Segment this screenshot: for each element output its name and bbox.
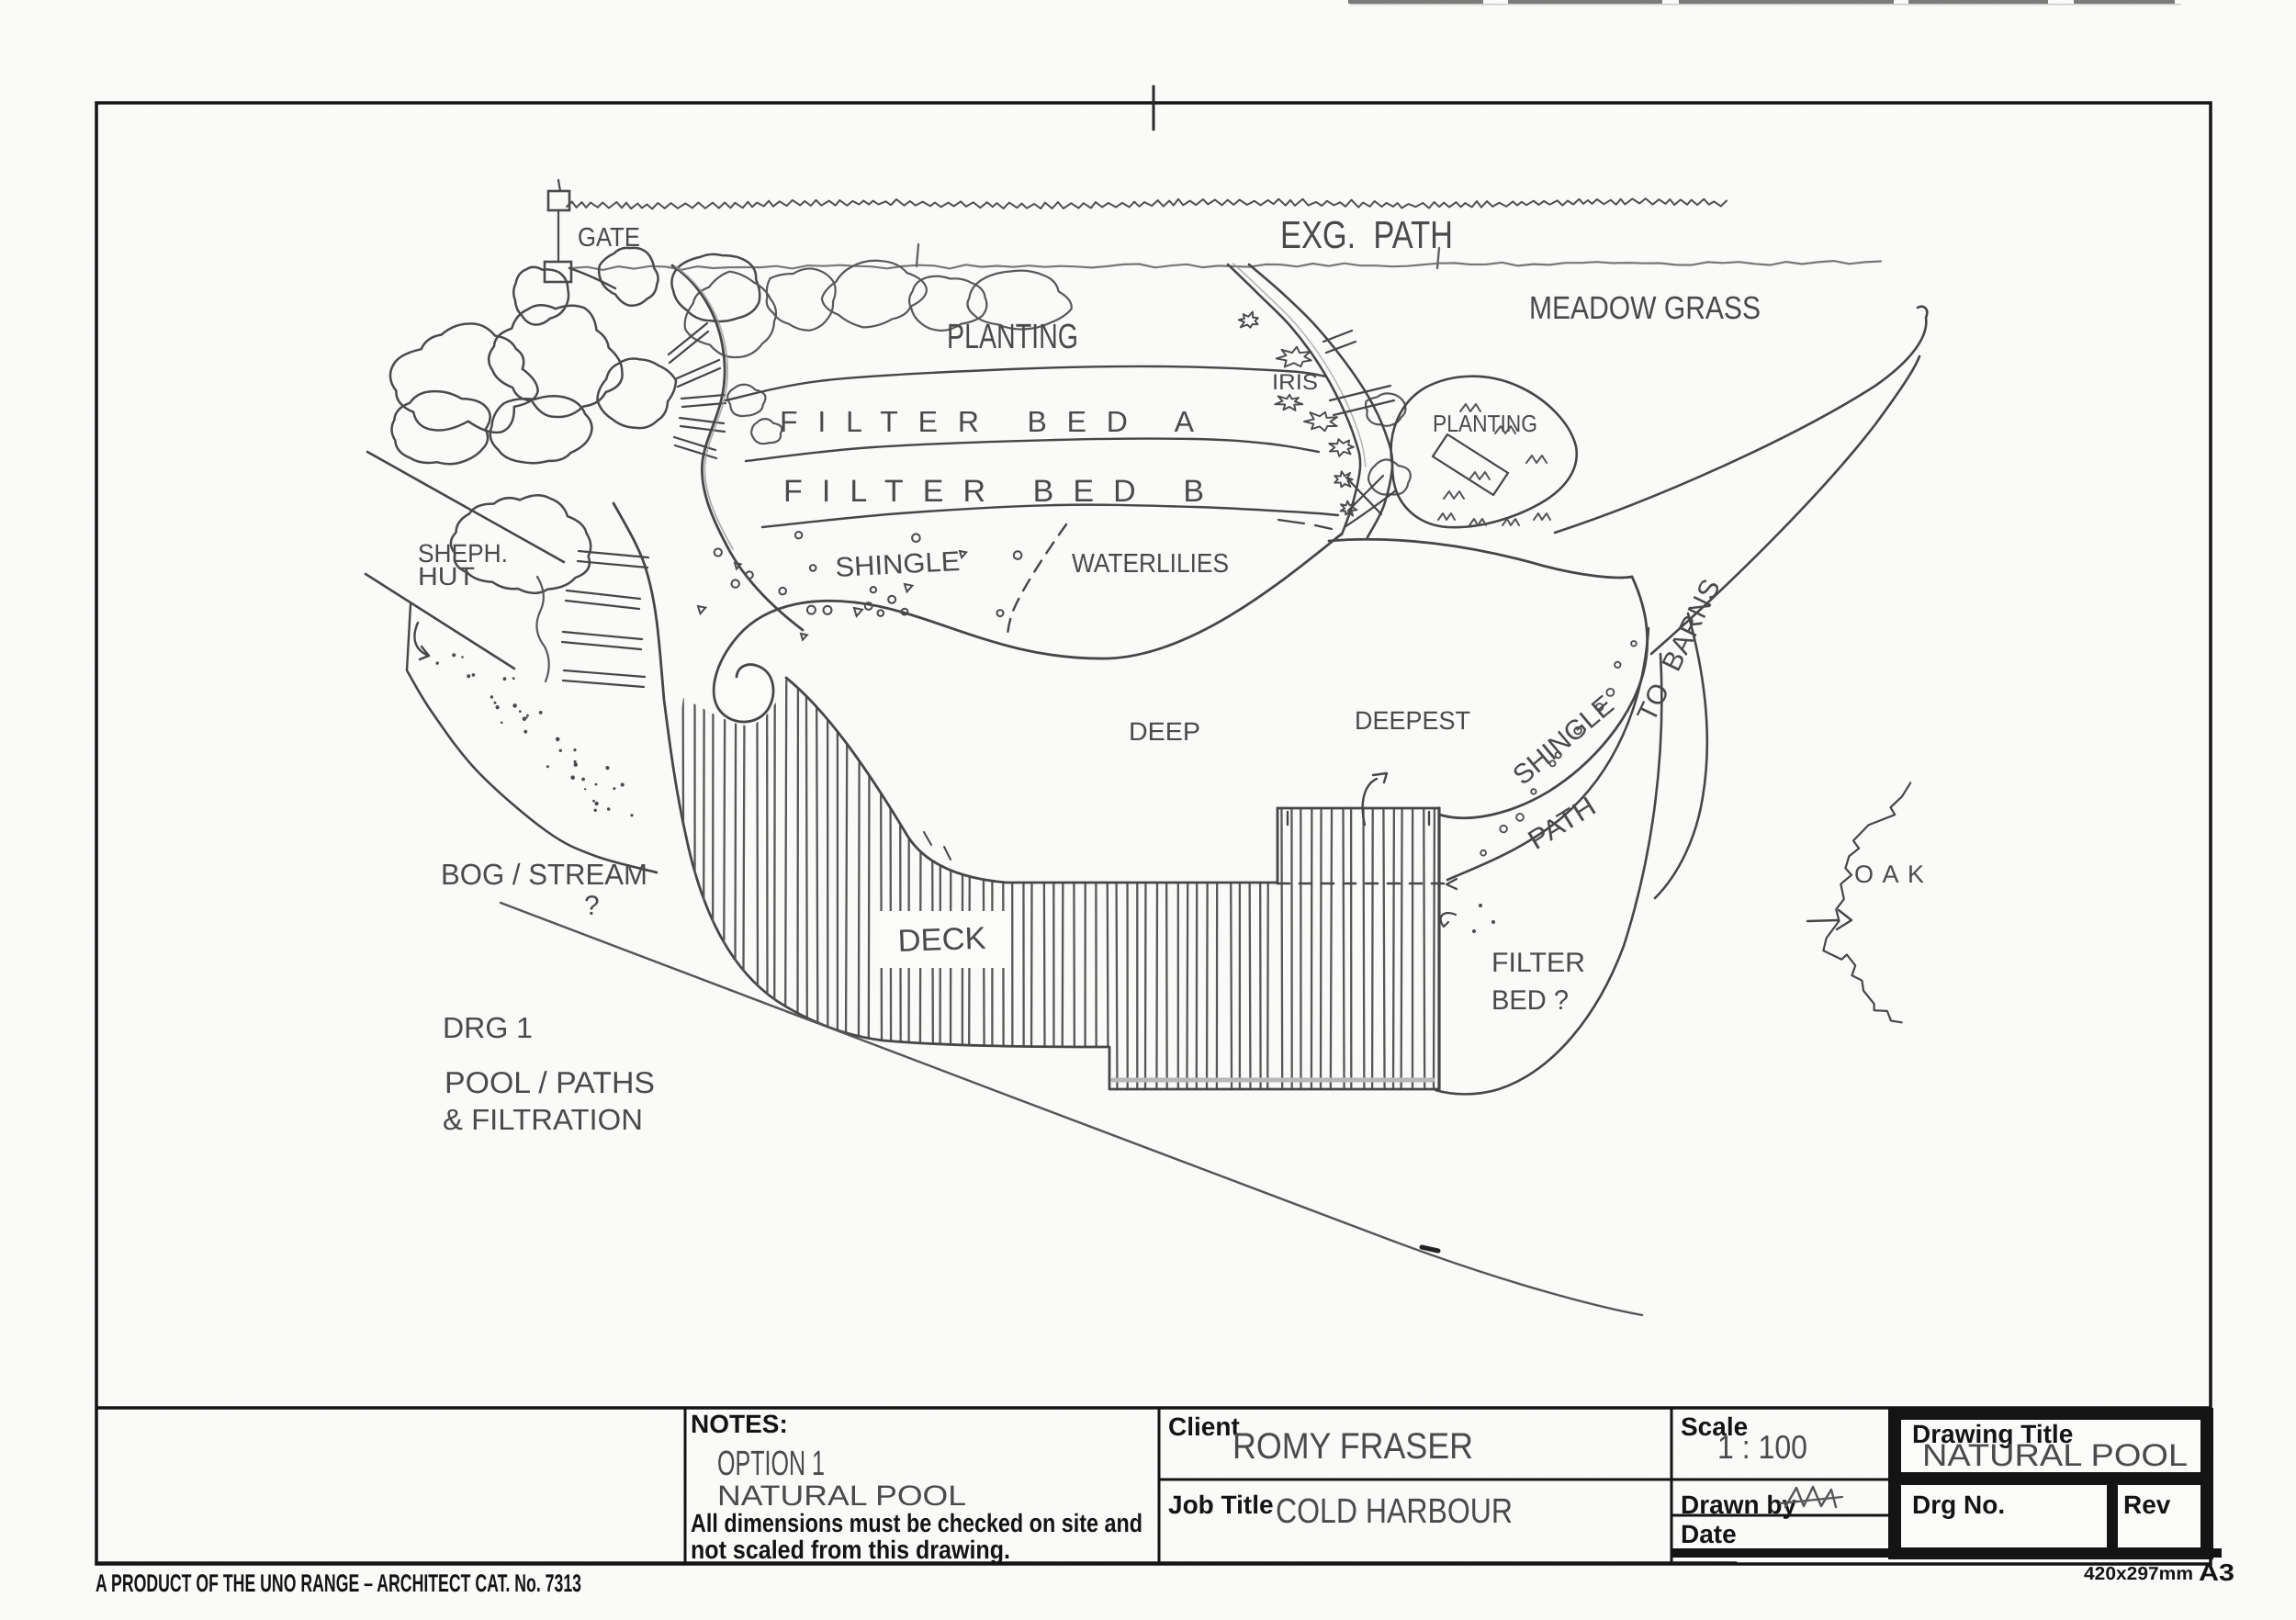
svg-text:Date: Date: [1681, 1520, 1737, 1548]
svg-text:COLD HARBOUR: COLD HARBOUR: [1276, 1492, 1513, 1531]
svg-text:WATERLILIES: WATERLILIES: [1072, 549, 1229, 579]
svg-text:PLANTING: PLANTING: [947, 318, 1078, 356]
svg-text:EXG. PATH: EXG. PATH: [1280, 213, 1453, 256]
svg-text:NATURAL POOL: NATURAL POOL: [1922, 1438, 2188, 1473]
svg-text:OAK: OAK: [1854, 861, 1924, 888]
svg-text:POOL / PATHS: POOL / PATHS: [445, 1065, 655, 1099]
svg-text:MEADOW GRASS: MEADOW GRASS: [1529, 290, 1761, 326]
svg-text:FILTER: FILTER: [1491, 948, 1585, 978]
svg-text:?: ?: [584, 891, 600, 921]
svg-text:Drg No.: Drg No.: [1912, 1491, 2005, 1519]
svg-text:PLANTING: PLANTING: [1433, 410, 1537, 437]
svg-text:DEEP: DEEP: [1129, 717, 1200, 746]
svg-text:DRG 1: DRG 1: [443, 1011, 533, 1044]
svg-text:Drawn by: Drawn by: [1681, 1491, 1796, 1519]
svg-text:OPTION 1: OPTION 1: [717, 1445, 825, 1483]
svg-text:& FILTRATION: & FILTRATION: [443, 1103, 643, 1136]
svg-text:IRIS: IRIS: [1272, 370, 1318, 395]
svg-text:DEEPEST: DEEPEST: [1355, 706, 1470, 735]
svg-text:A3: A3: [2199, 1558, 2234, 1586]
svg-text:ROMY FRASER: ROMY FRASER: [1232, 1426, 1473, 1467]
svg-text:420x297mm: 420x297mm: [2084, 1564, 2193, 1584]
svg-text:All dimensions must be checked: All dimensions must be checked on site a…: [691, 1509, 1142, 1537]
svg-text:NATURAL POOL: NATURAL POOL: [717, 1479, 966, 1512]
svg-text:1 : 100: 1 : 100: [1717, 1428, 1807, 1466]
svg-text:not scaled from this drawing.: not scaled from this drawing.: [691, 1536, 1010, 1564]
svg-text:A PRODUCT OF THE UNO RANGE – A: A PRODUCT OF THE UNO RANGE – ARCHITECT C…: [96, 1569, 581, 1597]
svg-text:Client: Client: [1168, 1412, 1240, 1441]
svg-text:BOG / STREAM: BOG / STREAM: [441, 858, 647, 891]
svg-text:NOTES:: NOTES:: [691, 1410, 788, 1438]
svg-text:Rev: Rev: [2123, 1491, 2171, 1519]
svg-text:BED ?: BED ?: [1491, 985, 1569, 1016]
svg-text:HUT: HUT: [418, 562, 475, 591]
svg-text:Job Title: Job Title: [1168, 1491, 1274, 1519]
svg-text:DECK: DECK: [897, 921, 987, 959]
